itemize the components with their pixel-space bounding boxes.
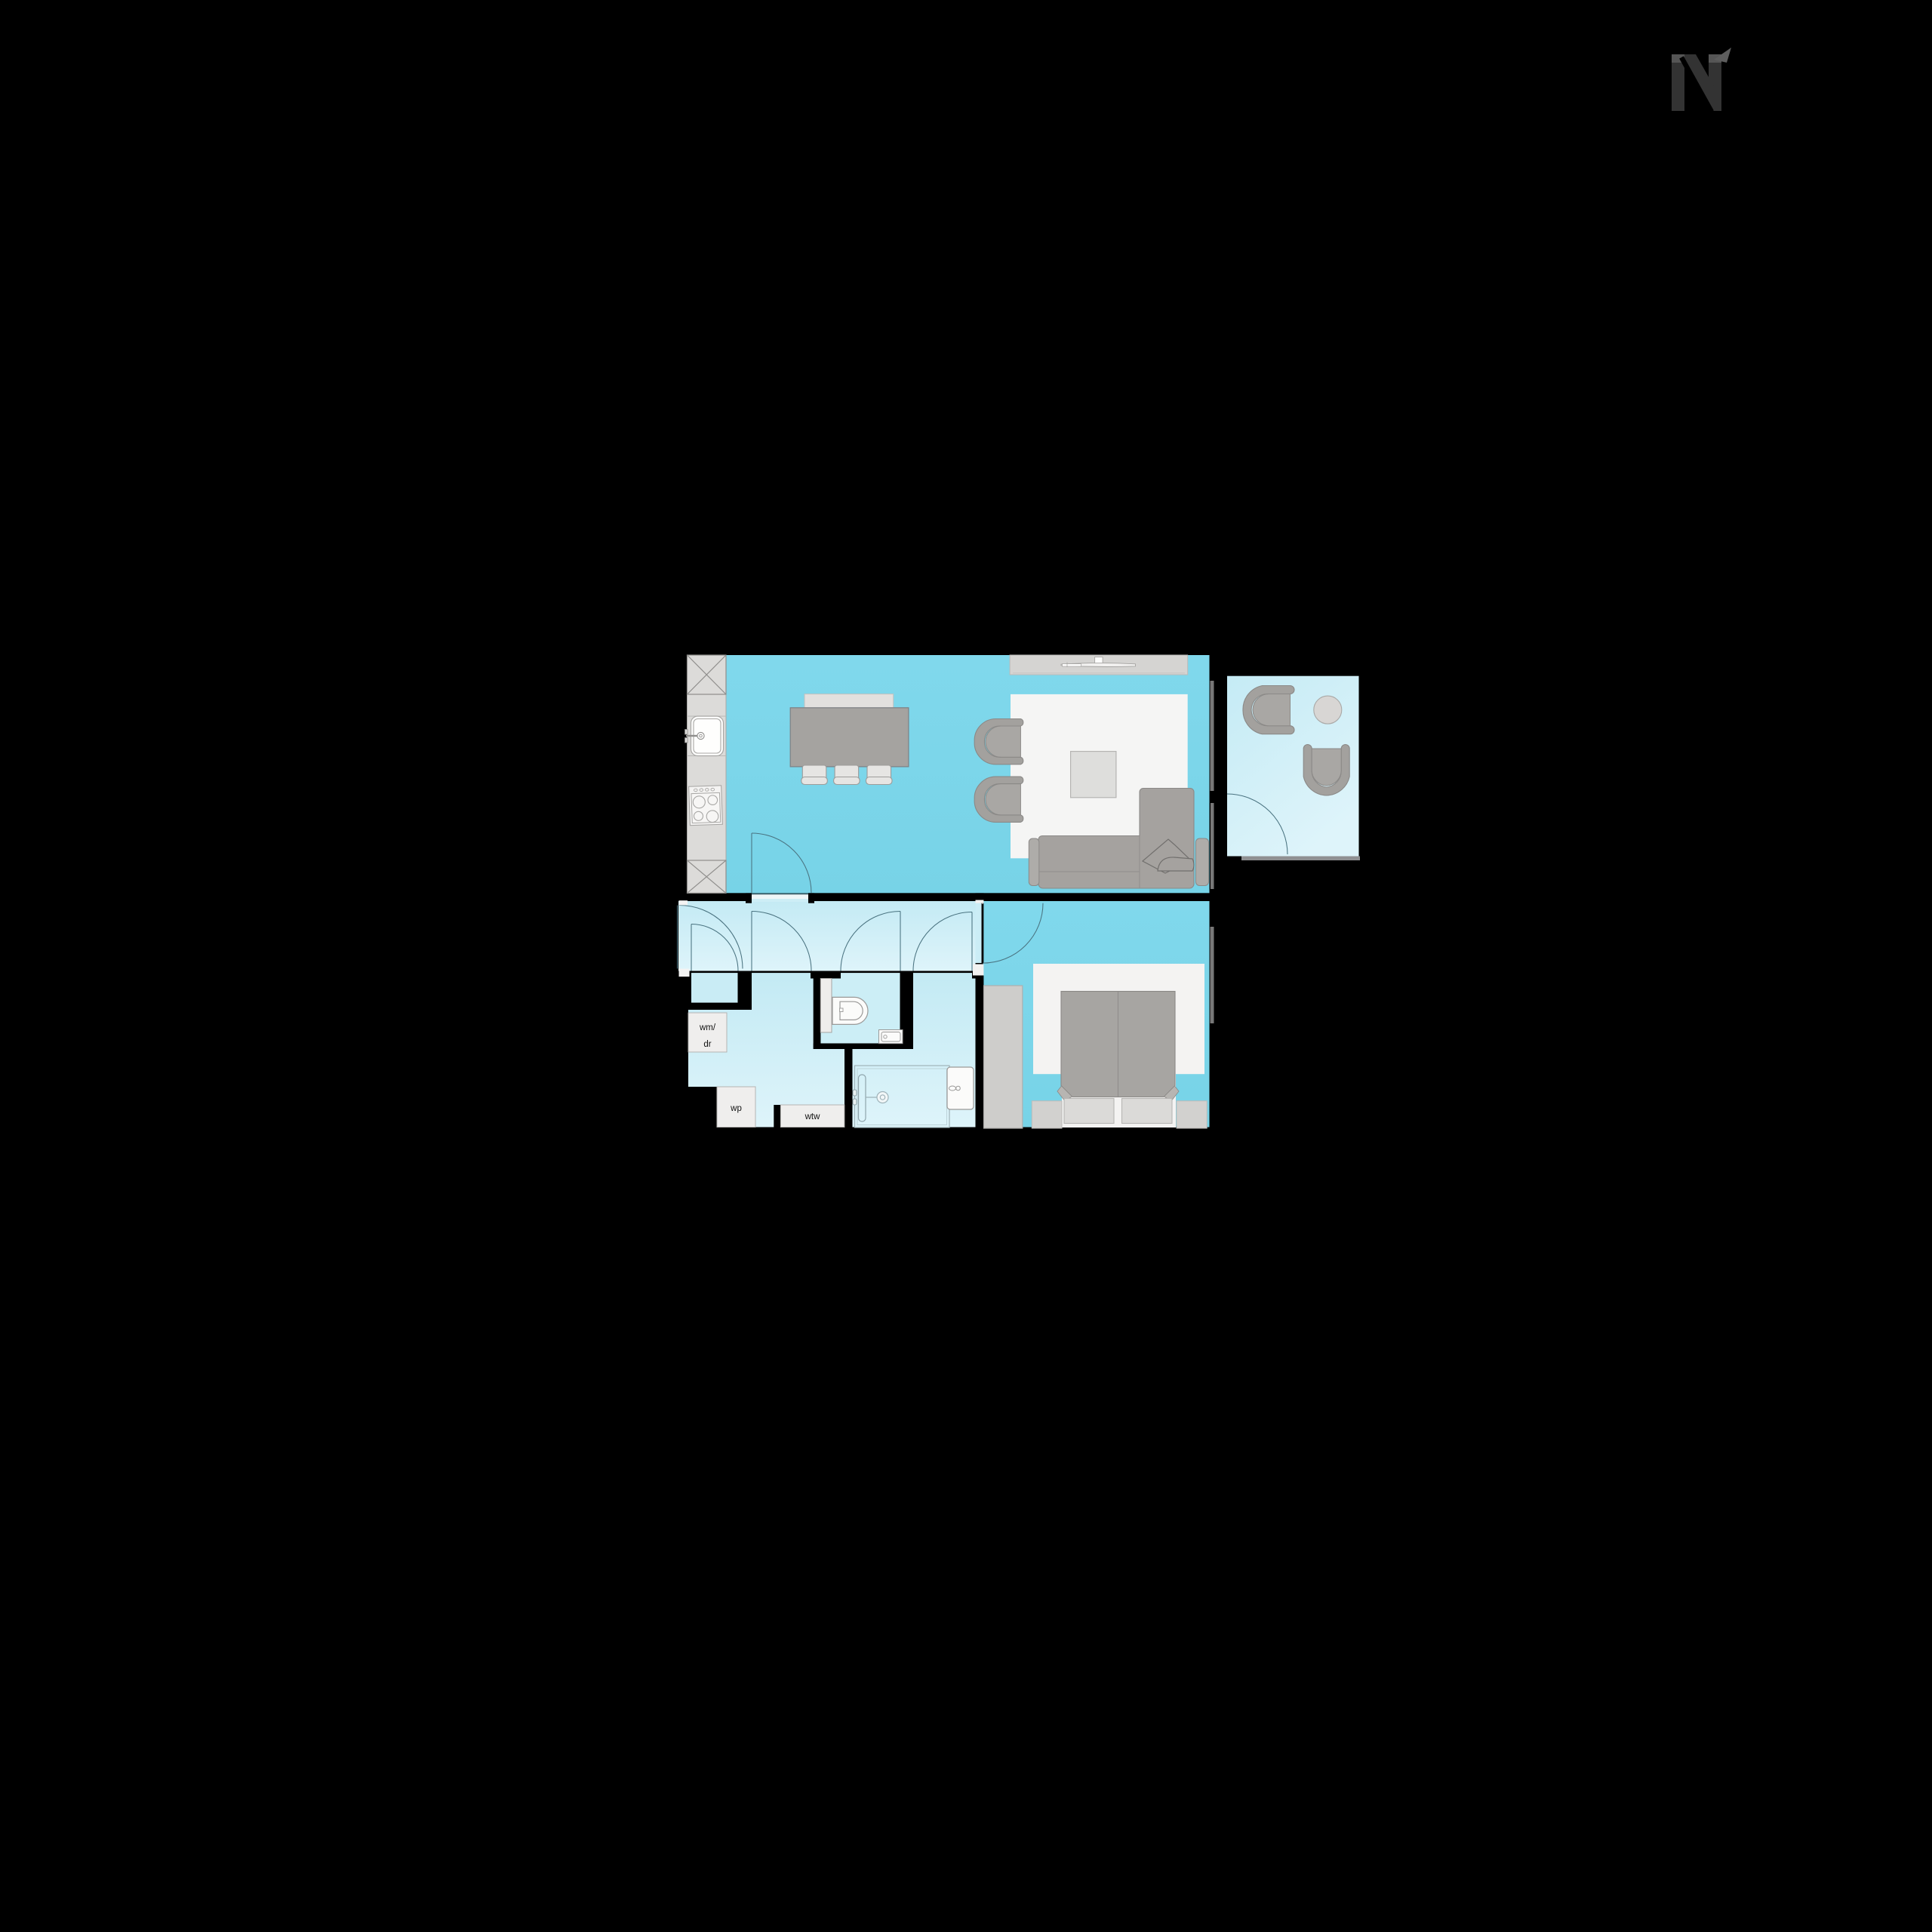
svg-text:wm/: wm/ — [699, 1023, 716, 1032]
svg-text:wp: wp — [730, 1104, 742, 1113]
svg-text:dr: dr — [703, 1040, 711, 1049]
svg-text:wtw: wtw — [804, 1112, 821, 1121]
